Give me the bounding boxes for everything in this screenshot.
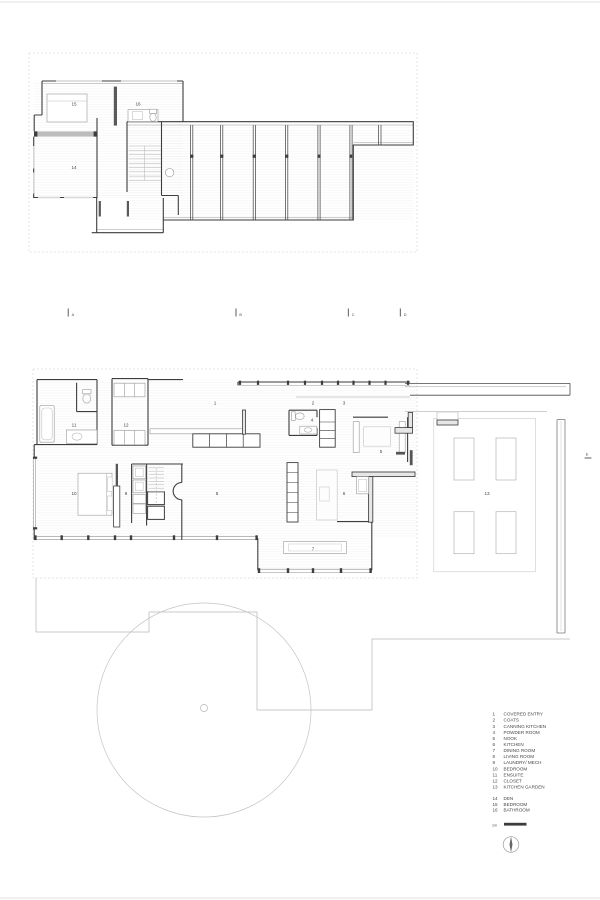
- legend-name: LIVING ROOM: [504, 754, 535, 759]
- door-leaf: [127, 201, 129, 217]
- legend: 1 COVERED ENTRY 2 COATS 3 CANNING KITCHE…: [493, 712, 547, 813]
- legend-name: BATHROOM: [504, 807, 530, 812]
- laundry-appliances: [133, 466, 146, 513]
- drawing-sheet: 15 16 14 A B C D E: [0, 0, 600, 900]
- door-leaf: [116, 464, 118, 486]
- north-arrow: [503, 837, 519, 853]
- legend-number: 14: [493, 796, 499, 801]
- north-arrow-needle: [510, 837, 513, 853]
- garden-counter: [437, 412, 458, 420]
- legend-name: DINING ROOM: [504, 748, 536, 753]
- legend-number: 15: [493, 802, 499, 807]
- legend-name: ENSUITE: [504, 772, 524, 777]
- room-label-8: 8: [216, 491, 219, 496]
- section-label-c: C: [352, 313, 355, 317]
- legend-name: NOOK: [504, 736, 518, 741]
- legend-number: 8: [493, 754, 496, 759]
- legend-number: 3: [493, 724, 496, 729]
- section-ticks: [68, 309, 400, 317]
- door-leaf: [99, 201, 101, 217]
- legend-name: KITCHEN GARDEN: [504, 785, 545, 790]
- room-label-13: 13: [484, 491, 490, 496]
- room-label-16: 16: [135, 102, 141, 107]
- tall-cabinets: [320, 410, 336, 448]
- site-circle-center: [201, 705, 208, 712]
- legend-number: 5: [493, 736, 496, 741]
- legend-number: 9: [493, 760, 496, 765]
- wall-cap: [34, 131, 37, 136]
- room-label-12: 12: [123, 423, 129, 428]
- legend-number: 6: [493, 742, 496, 747]
- garden-wall: [437, 420, 458, 425]
- dining-table: [284, 542, 347, 554]
- legend-name: COVERED ENTRY: [504, 712, 543, 717]
- room-label-15: 15: [71, 102, 77, 107]
- legend-number: 12: [493, 779, 499, 784]
- site-outline: [36, 578, 570, 817]
- scale-label: 1m: [492, 823, 497, 827]
- room-label-6: 6: [343, 491, 346, 496]
- room-label-10: 10: [71, 491, 77, 496]
- legend-name: BEDROOM: [504, 802, 528, 807]
- kitchen-garden: [434, 412, 565, 633]
- legend-name: DEN: [504, 796, 514, 801]
- bedroom-furniture: [78, 473, 112, 515]
- garden-pergola: [405, 383, 570, 395]
- legend-number: 1: [493, 712, 496, 717]
- wall-band: [34, 131, 97, 136]
- legend-number: 10: [493, 766, 499, 771]
- garden-east-wall: [557, 420, 565, 634]
- room-label-5: 5: [380, 449, 383, 454]
- legend-number: 16: [493, 807, 499, 812]
- legend-number: 13: [493, 785, 499, 790]
- legend-name: BEDROOM: [504, 766, 528, 771]
- section-label-d: D: [404, 313, 407, 317]
- legend-name: LAUNDRY/ MECH: [504, 760, 542, 765]
- scale-bar-line: [504, 823, 527, 826]
- legend-number: 7: [493, 748, 496, 753]
- room-label-14: 14: [71, 165, 77, 170]
- room-label-4: 4: [311, 418, 314, 423]
- section-label-b: B: [239, 313, 242, 317]
- door-leaf: [114, 87, 117, 126]
- room-label-7: 7: [312, 547, 315, 552]
- bedroom-wall-band: [114, 486, 120, 527]
- room-label-3: 3: [343, 401, 346, 406]
- legend-name: CLOSET: [504, 779, 523, 784]
- wall-cap: [94, 131, 97, 136]
- room-label-11: 11: [72, 423, 77, 428]
- room-label-1: 1: [214, 401, 217, 406]
- legend-number: 11: [493, 772, 498, 777]
- room-label-2: 2: [312, 401, 315, 406]
- legend-name: CANNING KITCHEN: [504, 724, 547, 729]
- legend-number: 4: [493, 730, 496, 735]
- section-label-a: A: [72, 313, 75, 317]
- main-floor-plan: 1 2 3 4 5 6 7 8 9 10 11 12 13: [33, 369, 570, 633]
- scale-bar: 1m: [492, 823, 527, 828]
- legend-number: 2: [493, 718, 496, 723]
- room-label-9: 9: [125, 491, 128, 496]
- legend-name: COATS: [504, 718, 519, 723]
- legend-name: POWDER ROOM: [504, 730, 540, 735]
- upper-floor-plan: 15 16 14: [29, 53, 417, 252]
- drawing-svg: 15 16 14 A B C D E: [0, 0, 600, 900]
- legend-name: KITCHEN: [504, 742, 524, 747]
- section-label-e: E: [586, 453, 589, 457]
